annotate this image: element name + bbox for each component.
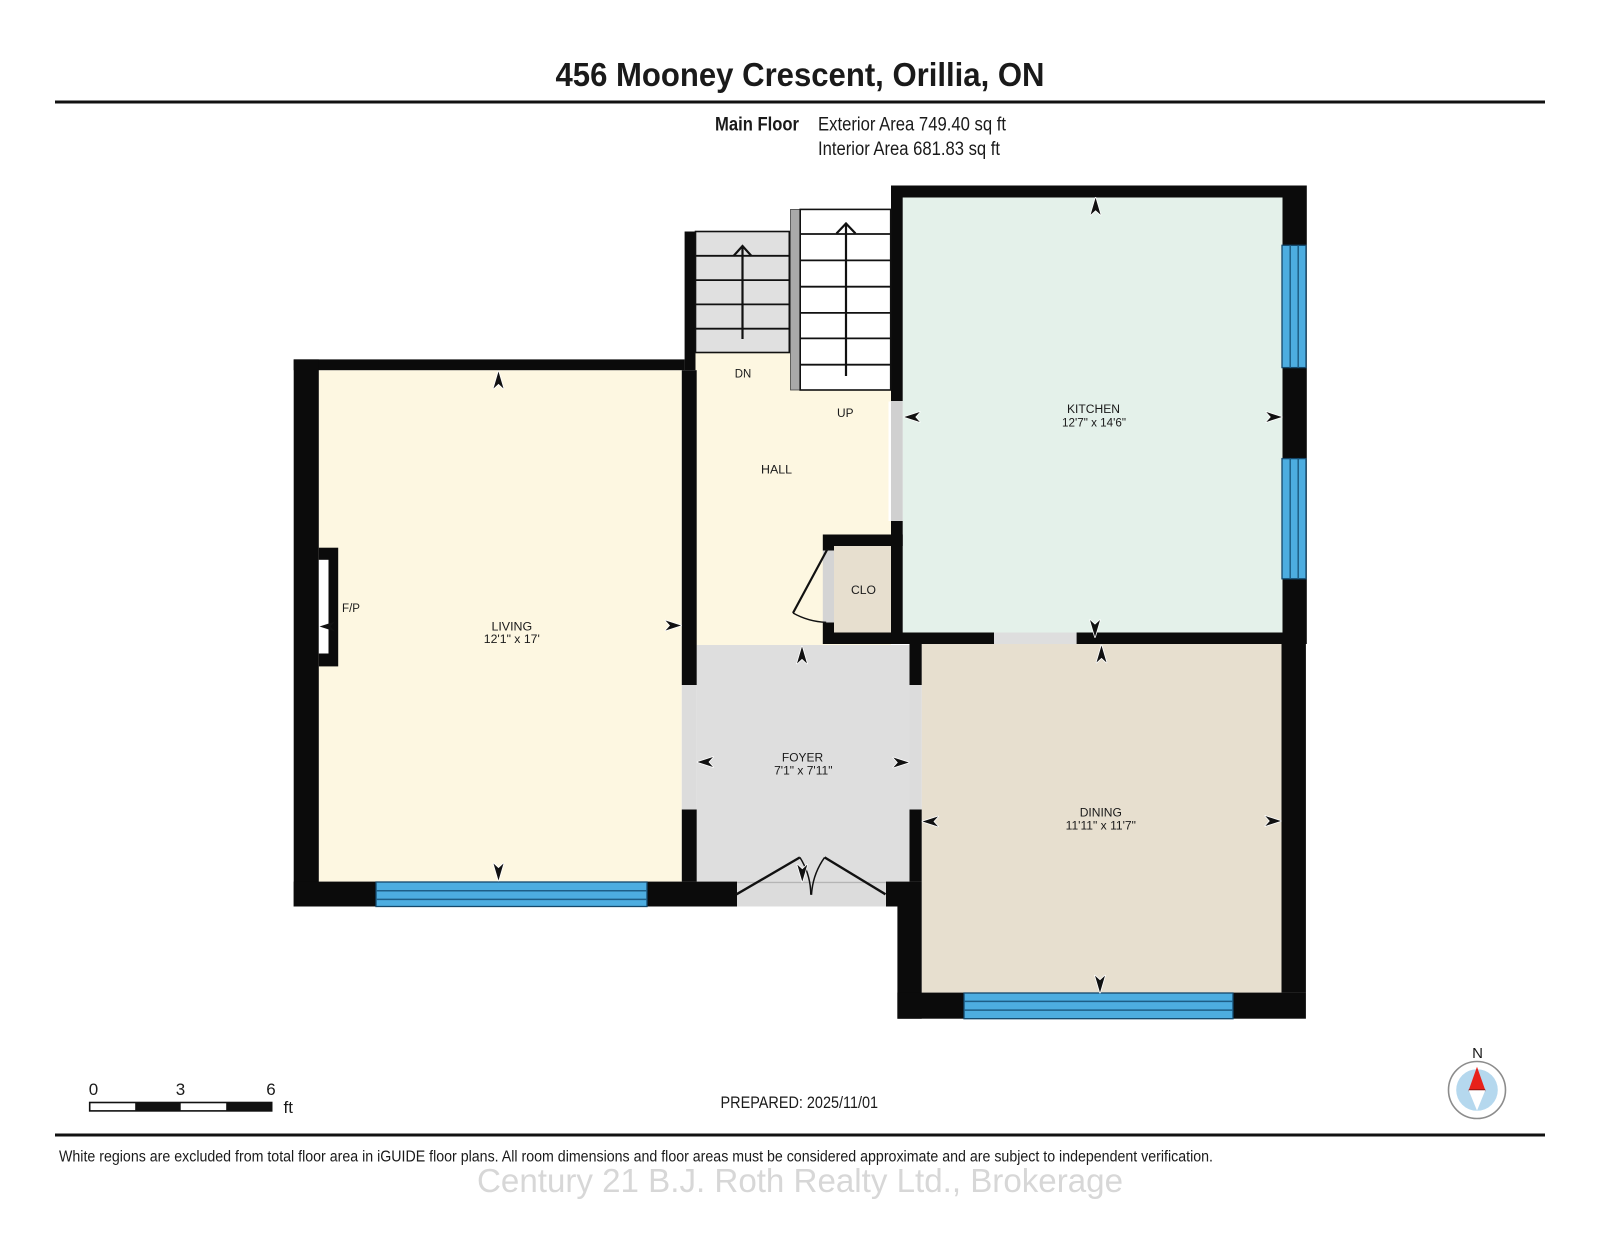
svg-text:12'1" x 17': 12'1" x 17': [484, 632, 540, 646]
svg-text:FOYER: FOYER: [782, 751, 823, 765]
svg-text:456 Mooney Crescent, Orillia,: 456 Mooney Crescent, Orillia, ON: [556, 56, 1045, 93]
svg-text:UP: UP: [837, 406, 854, 420]
svg-text:CLO: CLO: [851, 583, 876, 597]
svg-text:ft: ft: [284, 1098, 294, 1117]
svg-text:KITCHEN: KITCHEN: [1067, 402, 1120, 416]
svg-text:HALL: HALL: [761, 463, 792, 477]
svg-text:DINING: DINING: [1080, 806, 1122, 820]
svg-text:12'7" x 14'6": 12'7" x 14'6": [1062, 416, 1126, 430]
svg-text:F/P: F/P: [342, 601, 360, 615]
svg-text:11'11" x 11'7": 11'11" x 11'7": [1066, 819, 1136, 833]
svg-text:PREPARED: 2025/11/01: PREPARED: 2025/11/01: [721, 1093, 879, 1112]
svg-text:3: 3: [176, 1080, 185, 1099]
svg-text:Exterior Area 749.40 sq ft: Exterior Area 749.40 sq ft: [818, 115, 1007, 136]
svg-text:Interior Area 681.83 sq ft: Interior Area 681.83 sq ft: [818, 139, 1001, 160]
svg-text:N: N: [1472, 1045, 1483, 1062]
svg-text:Main Floor: Main Floor: [715, 115, 800, 136]
svg-text:Century 21 B.J. Roth Realty Lt: Century 21 B.J. Roth Realty Ltd., Broker…: [477, 1162, 1123, 1199]
svg-text:DN: DN: [735, 367, 752, 381]
svg-text:6: 6: [266, 1080, 275, 1099]
svg-text:0: 0: [89, 1080, 98, 1099]
svg-text:7'1" x 7'11": 7'1" x 7'11": [774, 764, 832, 778]
